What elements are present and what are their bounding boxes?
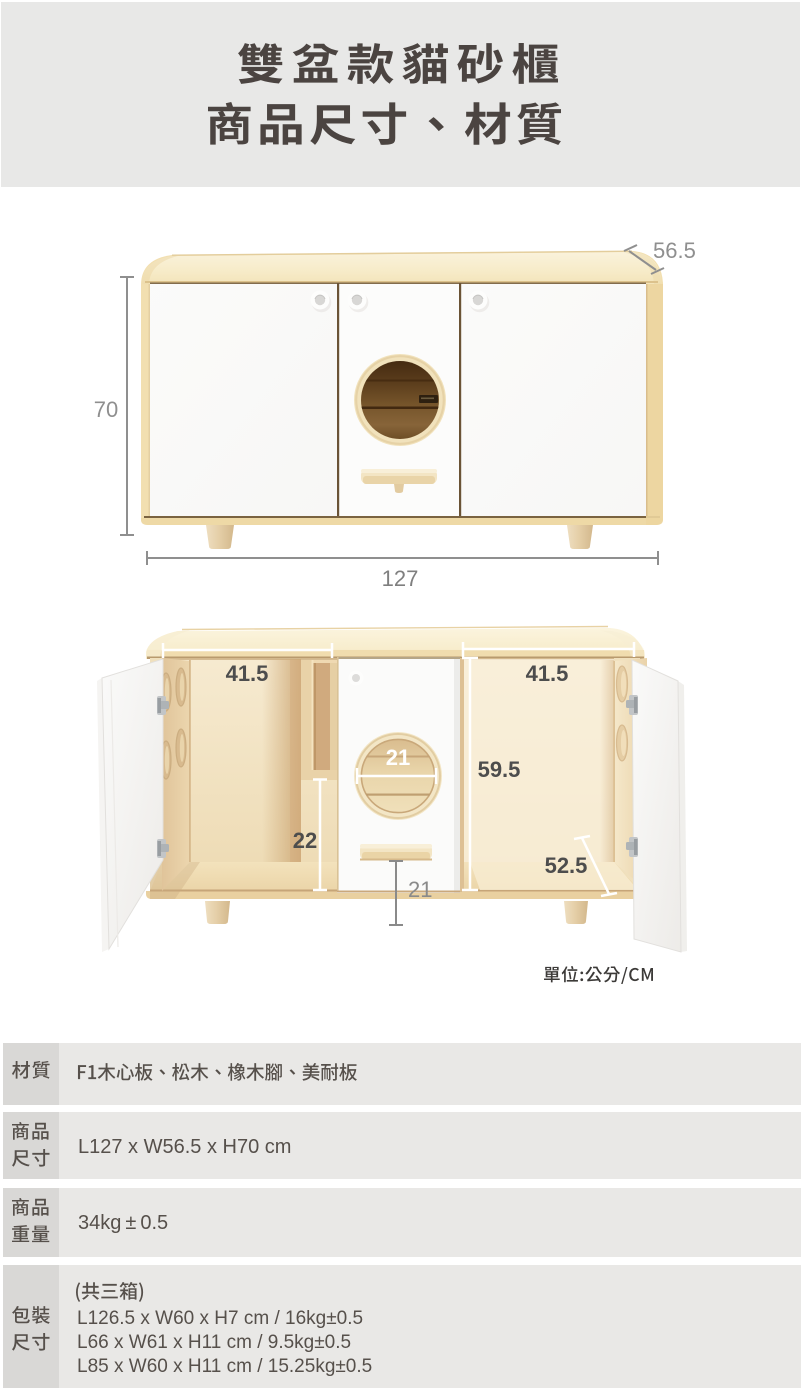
svg-text:34kg ± 0.5: 34kg ± 0.5 xyxy=(78,1212,168,1234)
svg-text:59.5: 59.5 xyxy=(478,757,521,782)
svg-text:41.5: 41.5 xyxy=(226,661,269,686)
svg-text:70: 70 xyxy=(94,397,118,422)
svg-text:L85 x W60 x H11 cm / 15.25kg±0: L85 x W60 x H11 cm / 15.25kg±0.5 xyxy=(77,1356,372,1377)
svg-text:L66 x W61 x H11 cm / 9.5kg±0.5: L66 x W61 x H11 cm / 9.5kg±0.5 xyxy=(77,1332,351,1353)
svg-text:21: 21 xyxy=(386,745,410,770)
svg-text:127: 127 xyxy=(382,566,419,591)
svg-text:L126.5 x W60 x H7 cm / 16kg±0.: L126.5 x W60 x H7 cm / 16kg±0.5 xyxy=(77,1308,363,1329)
svg-text:52.5: 52.5 xyxy=(545,853,588,878)
svg-text:L127 x W56.5 x H70 cm: L127 x W56.5 x H70 cm xyxy=(78,1136,291,1158)
svg-text:22: 22 xyxy=(293,828,317,853)
svg-text:56.5: 56.5 xyxy=(653,238,696,263)
svg-text:21: 21 xyxy=(408,877,432,902)
svg-text:41.5: 41.5 xyxy=(526,661,569,686)
